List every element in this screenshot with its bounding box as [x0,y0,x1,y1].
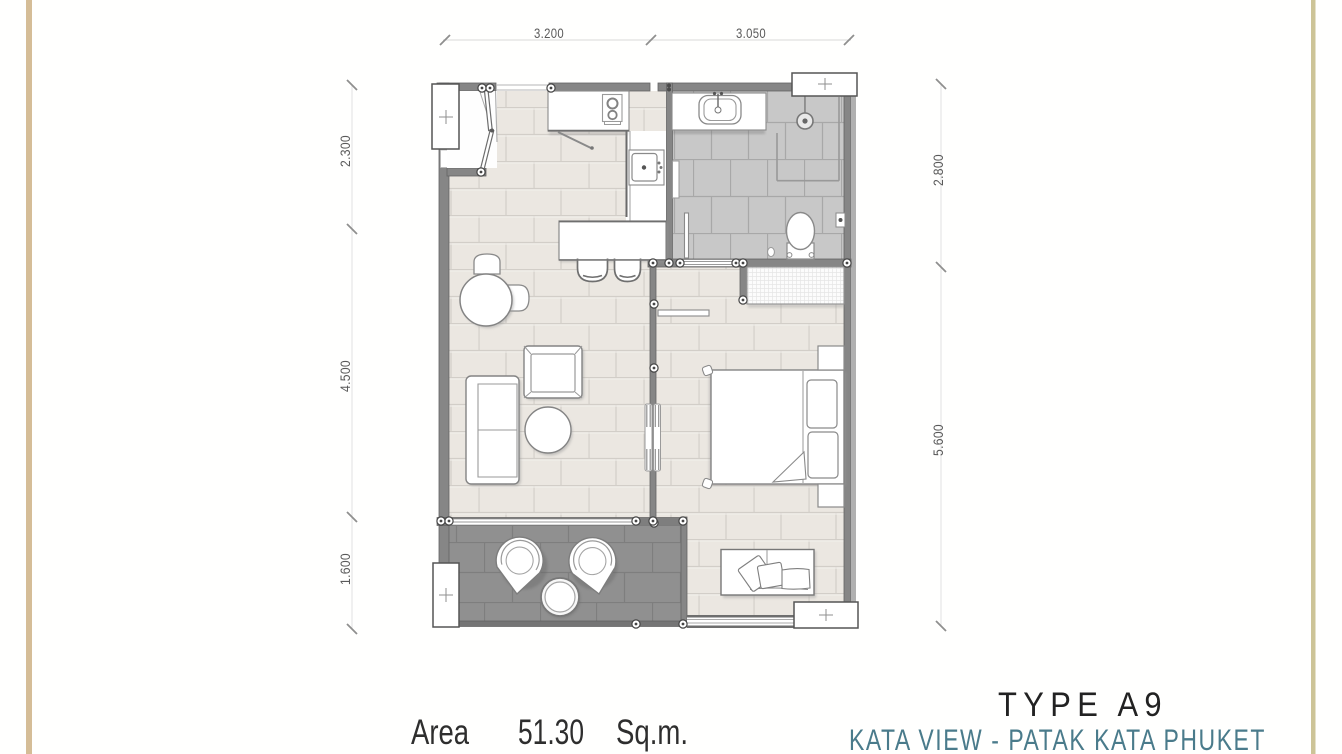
svg-text:Sq.m.: Sq.m. [616,713,688,752]
svg-text:3.200: 3.200 [534,25,564,41]
svg-text:KATA VIEW - PATAK KATA PHUKET: KATA VIEW - PATAK KATA PHUKET [849,724,1266,754]
svg-text:TYPE A9: TYPE A9 [998,686,1168,724]
svg-text:3.050: 3.050 [736,25,766,41]
svg-text:Area: Area [411,713,469,752]
svg-text:2.300: 2.300 [337,135,353,167]
svg-text:2.800: 2.800 [930,154,946,186]
svg-text:1.600: 1.600 [337,553,353,585]
svg-text:4.500: 4.500 [337,360,353,392]
svg-text:5.600: 5.600 [930,424,946,456]
svg-text:51.30: 51.30 [518,713,584,752]
